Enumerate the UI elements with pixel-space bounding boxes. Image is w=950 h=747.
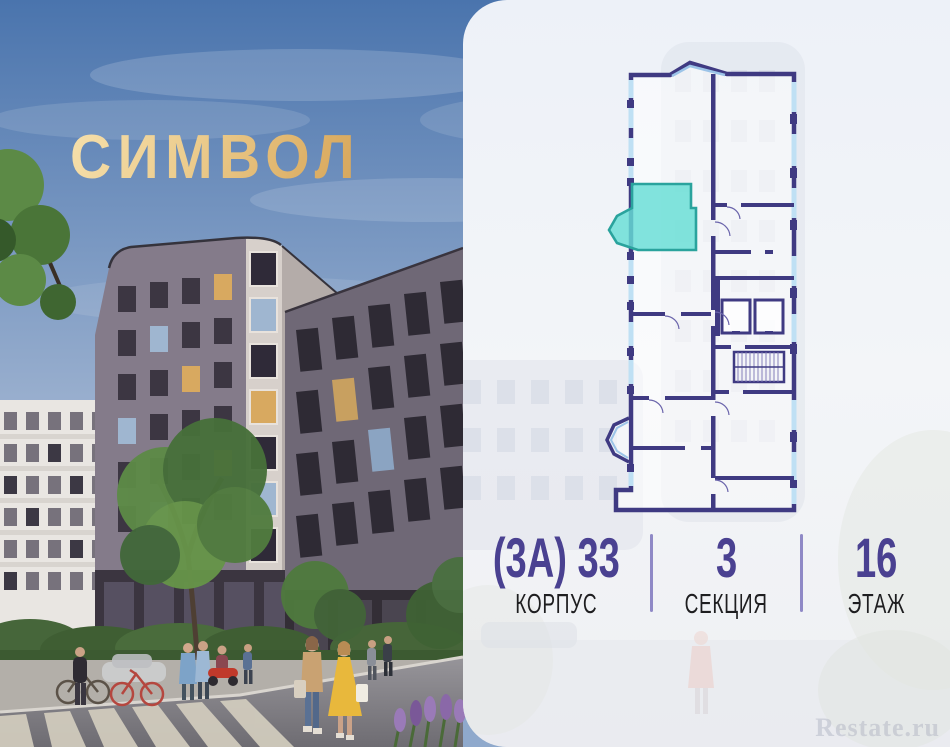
watermark: Restate.ru: [815, 713, 940, 743]
korpus-value: (3А) 33: [493, 530, 620, 586]
stat-section: 3 СЕКЦИЯ: [653, 530, 800, 622]
unit-stats: (3А) 33 КОРПУС 3 СЕКЦИЯ 16 ЭТАЖ: [463, 530, 950, 622]
floor-label: ЭТАЖ: [848, 590, 906, 618]
plan-corridor-wall: [711, 74, 716, 510]
details-panel: (3А) 33 КОРПУС 3 СЕКЦИЯ 16 ЭТАЖ Restate.…: [463, 0, 950, 747]
section-label: СЕКЦИЯ: [685, 590, 768, 618]
highlighted-unit[interactable]: [609, 184, 696, 250]
floor-plan: [604, 60, 800, 516]
korpus-label: КОРПУС: [515, 590, 597, 618]
plan-outline-fill: [616, 63, 794, 510]
floor-value: 16: [855, 530, 897, 586]
plan-bay-window: [607, 418, 629, 462]
stat-floor: 16 ЭТАЖ: [803, 530, 950, 622]
stat-korpus: (3А) 33 КОРПУС: [463, 530, 650, 622]
screenshot-root: СИМВОЛ: [0, 0, 950, 747]
section-value: 3: [716, 530, 737, 586]
brand-logo: СИМВОЛ: [70, 118, 383, 198]
